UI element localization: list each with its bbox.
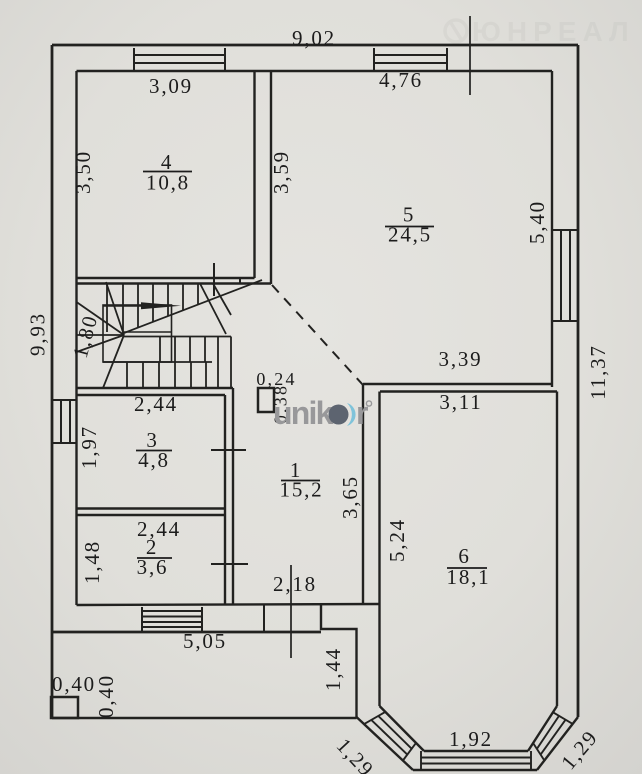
svg-text:11,37: 11,37 bbox=[586, 344, 610, 399]
svg-text:4,76: 4,76 bbox=[379, 68, 423, 92]
svg-text:1,44: 1,44 bbox=[321, 647, 345, 691]
svg-text:2,18: 2,18 bbox=[273, 572, 317, 596]
svg-text:1,48: 1,48 bbox=[80, 540, 104, 584]
svg-text:5,40: 5,40 bbox=[525, 200, 549, 244]
svg-text:5,05: 5,05 bbox=[183, 629, 227, 653]
svg-text:3,65: 3,65 bbox=[338, 475, 362, 519]
svg-text:unik: unik bbox=[273, 395, 334, 431]
svg-text:1,92: 1,92 bbox=[449, 727, 493, 751]
svg-text:18,1: 18,1 bbox=[447, 565, 491, 589]
svg-text:10,8: 10,8 bbox=[146, 171, 190, 195]
svg-text:24,5: 24,5 bbox=[388, 223, 432, 247]
svg-text:2,44: 2,44 bbox=[137, 517, 181, 541]
svg-text:3,11: 3,11 bbox=[439, 390, 482, 414]
svg-text:r: r bbox=[356, 395, 368, 431]
svg-text:3,6: 3,6 bbox=[137, 555, 169, 579]
svg-text:3,50: 3,50 bbox=[71, 150, 95, 194]
svg-text:3,09: 3,09 bbox=[149, 74, 193, 98]
svg-text:3,59: 3,59 bbox=[269, 150, 293, 194]
svg-text:0,40: 0,40 bbox=[52, 672, 96, 696]
svg-text:9,02: 9,02 bbox=[292, 26, 336, 50]
svg-text:1,97: 1,97 bbox=[77, 425, 101, 469]
svg-text:15,2: 15,2 bbox=[280, 478, 324, 502]
svg-text:0,40: 0,40 bbox=[94, 674, 118, 718]
svg-text:4,8: 4,8 bbox=[138, 448, 170, 472]
svg-text:ЮНРЕАЛ: ЮНРЕАЛ bbox=[472, 16, 635, 47]
svg-text:5,24: 5,24 bbox=[385, 518, 409, 562]
svg-text:9,93: 9,93 bbox=[26, 312, 50, 356]
svg-text:2,44: 2,44 bbox=[134, 392, 178, 416]
svg-text:3,39: 3,39 bbox=[439, 347, 483, 371]
